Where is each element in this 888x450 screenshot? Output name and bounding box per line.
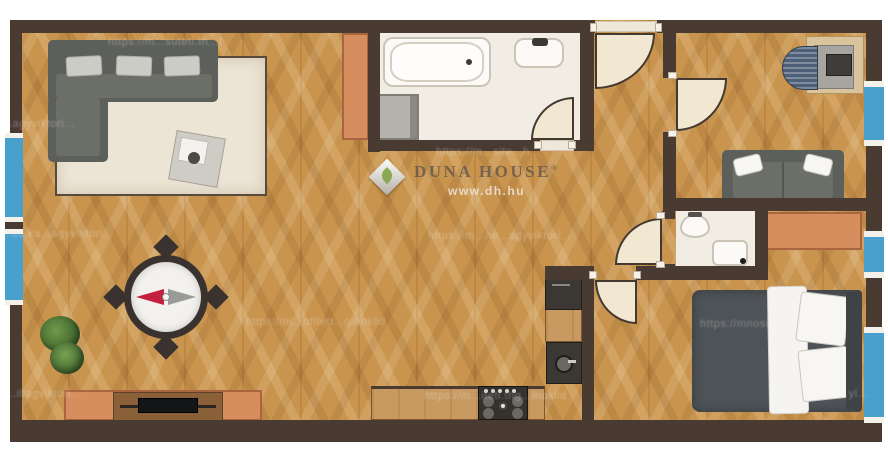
washing-machine-door (410, 96, 417, 138)
brand-name: DUNA HOUSE® (414, 162, 559, 182)
floor-plan: DUNA HOUSE® www.dh.hu https://m...suteti… (0, 0, 888, 450)
kitchen-faucet (568, 360, 576, 363)
compass-icon (108, 239, 224, 355)
stove-knob (491, 389, 495, 393)
door-hinge (590, 23, 597, 32)
registered-mark: ® (551, 163, 559, 172)
stove-burner (512, 408, 523, 419)
wardrobe (764, 212, 862, 250)
window (5, 138, 23, 217)
stove-burner (483, 396, 494, 407)
wall (10, 420, 882, 442)
door-hinge (568, 141, 576, 149)
laptop (826, 54, 852, 76)
window (864, 87, 884, 140)
stove-burner (512, 396, 523, 407)
stove-burner (483, 408, 494, 419)
toilet-sink-faucet (688, 212, 702, 217)
wall (10, 20, 595, 33)
hall-cabinet (342, 33, 369, 140)
window-sill (864, 140, 884, 146)
sofa-pillow (164, 55, 201, 76)
entrance-threshold (595, 21, 657, 32)
wall (657, 20, 882, 33)
duna-house-logo: DUNA HOUSE® www.dh.hu (370, 160, 570, 204)
toilet-flush-button (740, 258, 746, 264)
bed-pillow (797, 346, 852, 403)
kitchen-counter-column (545, 308, 582, 342)
duna-house-logo-icon (369, 159, 406, 196)
table-bowl (188, 152, 200, 164)
sofa-chaise-seat (56, 98, 100, 156)
window-divider (5, 222, 23, 229)
plant-icon (50, 342, 84, 374)
window (864, 237, 884, 272)
door-hinge (534, 141, 542, 149)
door-hinge (668, 72, 677, 79)
bathtub-drain (466, 59, 472, 65)
window (5, 234, 23, 300)
bathroom-wall-west (368, 20, 380, 152)
compass-needle-west (136, 289, 164, 305)
window-sill (864, 417, 884, 423)
stove-knob (484, 389, 488, 393)
toilet-sink (680, 214, 710, 238)
compass-needle-east (168, 289, 196, 305)
door-hinge (633, 271, 641, 279)
compass-pivot (162, 293, 170, 301)
sink-faucet (532, 38, 548, 46)
door-hinge (589, 271, 597, 279)
brand-name-text: DUNA HOUSE (414, 162, 551, 181)
stove-dial (499, 402, 507, 410)
sofa-seat (56, 74, 212, 98)
study-sofa-cushion-split (782, 162, 784, 198)
tv (138, 398, 198, 413)
sofa-pillow (116, 55, 153, 76)
study-wall-west (663, 132, 676, 205)
bed-headboard (846, 292, 862, 410)
window-sill (864, 272, 884, 278)
window-sill (5, 300, 23, 305)
stove-knob (512, 389, 516, 393)
door-hinge (668, 130, 677, 137)
fridge-handle (552, 284, 570, 286)
bathroom-wall-south (368, 140, 540, 151)
kitchen-back-wall (582, 266, 594, 420)
logo-leaf-icon (379, 167, 396, 184)
desk-chair (782, 46, 818, 90)
fridge (545, 276, 582, 310)
bed-pillow (795, 291, 851, 347)
sofa-pillow (66, 55, 103, 77)
brand-url: www.dh.hu (448, 184, 525, 198)
toilet-wall-south (662, 266, 762, 280)
bedroom-wall-north (636, 266, 676, 280)
study-wall-west (663, 20, 676, 78)
study-wall-south (663, 198, 866, 211)
bathroom-wall-east (580, 20, 594, 151)
door-hinge (656, 261, 665, 268)
kitchen-sink (555, 355, 573, 373)
door-hinge (655, 23, 662, 32)
toilet-wall-east (755, 211, 768, 280)
stove-knob (498, 389, 502, 393)
door-hinge (656, 212, 665, 219)
window (864, 333, 884, 417)
stove-knob (505, 389, 509, 393)
